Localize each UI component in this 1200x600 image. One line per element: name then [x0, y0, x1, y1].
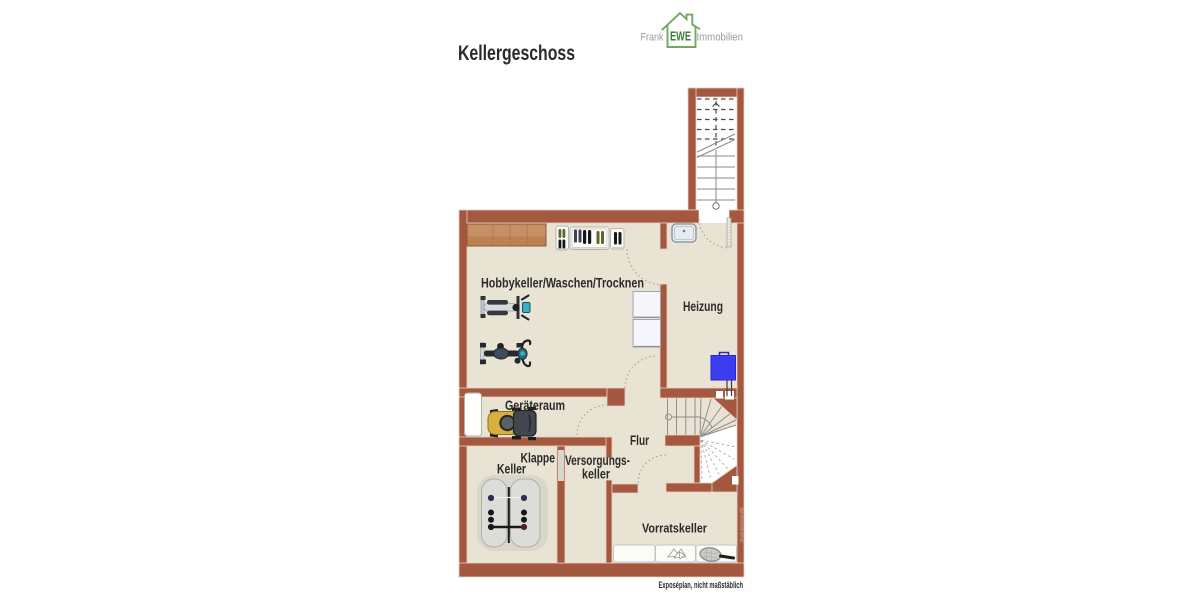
svg-text:Exposéplan, nicht maßstäblich: Exposéplan, nicht maßstäblich [659, 580, 744, 591]
svg-text:EWE: EWE [670, 29, 691, 43]
svg-text:Flur: Flur [630, 433, 650, 448]
svg-text:Vorratskeller: Vorratskeller [642, 521, 707, 536]
svg-text:keller: keller [582, 467, 611, 482]
svg-text:Hobbykeller/Waschen/Trocknen: Hobbykeller/Waschen/Trocknen [481, 275, 644, 291]
svg-text:Kellergeschoss: Kellergeschoss [458, 42, 575, 65]
svg-text:Geräteraum: Geräteraum [505, 398, 565, 413]
svg-text:Frank: Frank [641, 32, 664, 44]
svg-text:IllustrationsGrafik: IllustrationsGrafik [739, 506, 744, 542]
svg-text:Keller: Keller [497, 462, 527, 477]
svg-text:Heizung: Heizung [683, 298, 723, 314]
svg-text:Immobilien: Immobilien [697, 32, 744, 44]
